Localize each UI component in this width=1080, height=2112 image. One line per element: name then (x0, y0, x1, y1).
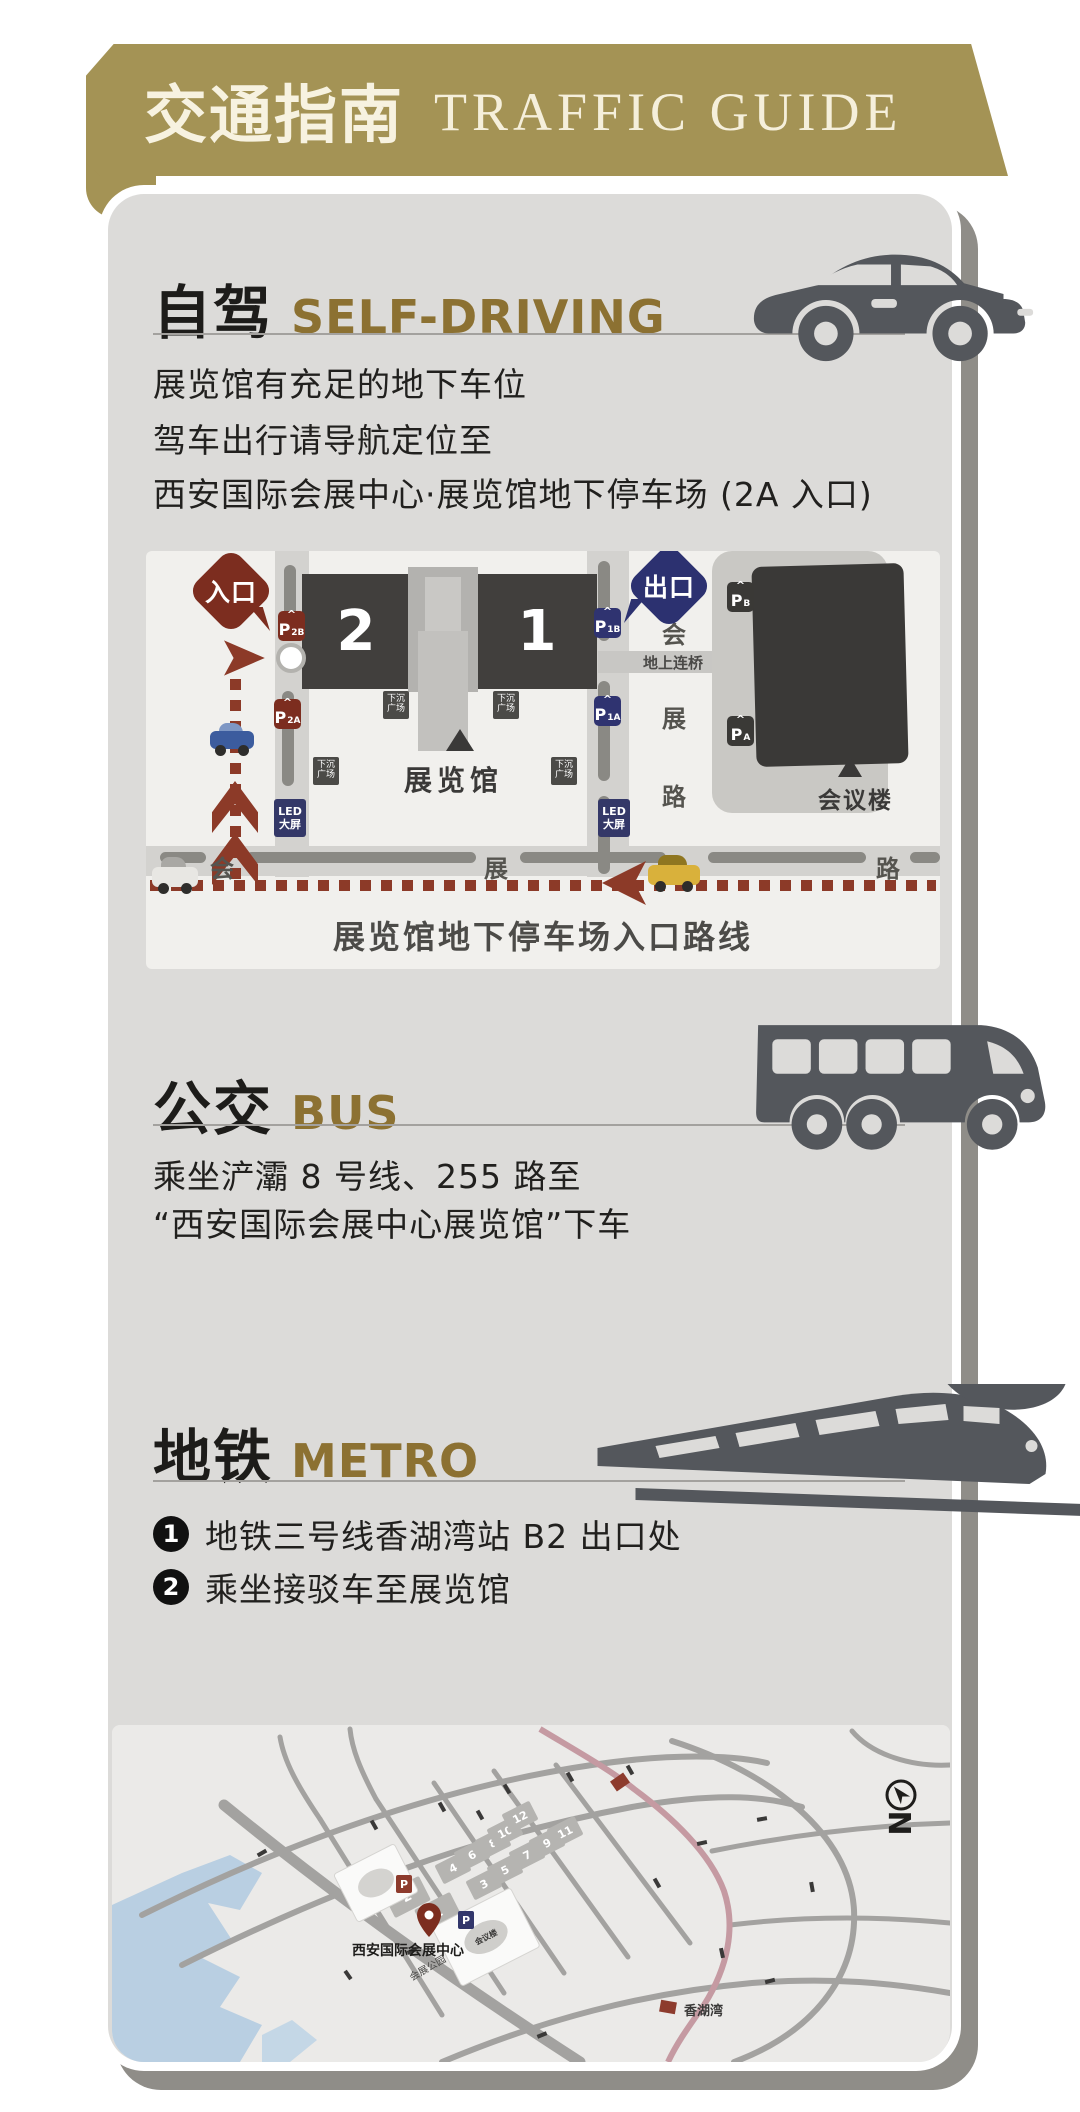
badge-letter: P (731, 593, 743, 609)
led-screen-badge: LED 大屏 (598, 799, 630, 837)
road-name-char: 会 (210, 849, 234, 884)
hall-1-block: 1 (477, 574, 597, 689)
route-arrow-right-icon (224, 637, 272, 679)
conference-triangle-icon (838, 757, 862, 777)
step-number-badge: 1 (153, 1516, 189, 1552)
car-icon (743, 224, 1043, 372)
road-median (520, 852, 666, 863)
taxi-icon (648, 855, 700, 889)
venue-pin-label: 西安国际会展中心 (352, 1942, 464, 1959)
banner-title-zh: 交通指南 (144, 65, 404, 156)
parking-badge-p2a: P2A (274, 699, 301, 729)
self-driving-line: 西安国际会展中心·展览馆地下停车场 (2A 入口) (153, 468, 873, 516)
bus-icon (748, 1002, 1052, 1188)
parking-badge-p2b: P2B (278, 611, 305, 641)
bus-title-zh: 公交 (153, 1062, 273, 1146)
badge-letter: P (400, 1878, 408, 1891)
blue-car-icon (210, 723, 254, 753)
badge-sub: 2A (287, 717, 300, 726)
white-car-icon (152, 857, 198, 891)
station-label: 香湖湾 (683, 2003, 723, 2019)
road-median (246, 852, 476, 863)
city-map-svg: 香湖湾 123456789101112 会议楼 P (112, 1725, 950, 2062)
entrance-bubble: 入口 (187, 551, 275, 635)
parking-badge-p1b: P1B (594, 608, 621, 638)
metro-step-2: 2 乘坐接驳车至展览馆 (153, 1563, 511, 1611)
led-screen-badge: LED 大屏 (274, 799, 306, 837)
city-map: 香湖湾 123456789101112 会议楼 P (112, 1725, 950, 2062)
road-median (708, 852, 866, 863)
entrance-point-marker (276, 643, 306, 673)
parking-badge-blue: P (458, 1911, 474, 1929)
conference-hall-label: 会议楼 (818, 781, 893, 815)
parking-route-diagram: 2 1 下沉 广场 下沉 广场 下沉 广场 下沉 广场 展览馆 LED 大屏 L… (146, 551, 940, 969)
self-driving-line: 驾车出行请导航定位至 (153, 414, 493, 462)
parking-badge-red: P (396, 1875, 412, 1893)
content-card: 自驾 SELF-DRIVING 展览馆有充足的地下车位 驾车出行请导航定位至 西… (108, 194, 952, 2062)
road-name-char: 路 (876, 849, 900, 884)
bus-line: 乘坐浐灞 8 号线、255 路至 (153, 1150, 581, 1198)
route-dashed-horizontal (150, 880, 936, 891)
badge-sub: 1B (607, 626, 620, 635)
section-title-bus: 公交 BUS (153, 1062, 400, 1146)
badge-letter: P (595, 619, 607, 635)
sunken-plaza-badge: 下沉 广场 (313, 757, 339, 785)
traffic-guide-poster: 交通指南 TRAFFIC GUIDE 自驾 SELF-DRIVING 展览馆有充… (0, 0, 1080, 2112)
badge-sub: 2B (291, 629, 304, 638)
banner-title-en: TRAFFIC GUIDE (434, 81, 903, 143)
badge-letter: P (275, 710, 287, 726)
parking-badge-pa: PA (727, 716, 754, 746)
badge-sub: B (743, 600, 750, 609)
bridge-label: 地上连桥 (643, 652, 703, 673)
conference-building (751, 563, 908, 767)
self-driving-title-zh: 自驾 (153, 266, 273, 350)
exhibition-hall-label: 展览馆 (404, 759, 503, 799)
sunken-plaza-badge: 下沉 广场 (493, 691, 519, 719)
hall-1-number: 1 (518, 599, 557, 664)
badge-sub: 1A (607, 714, 620, 723)
badge-letter: P (279, 622, 291, 638)
road-name-char: 展 (662, 699, 686, 734)
train-icon (588, 1384, 1080, 1534)
self-driving-line: 展览馆有充足的地下车位 (153, 358, 527, 406)
badge-letter: P (462, 1914, 470, 1927)
badge-letter: P (731, 727, 743, 743)
step-number-badge: 2 (153, 1569, 189, 1605)
road-name-char: 展 (484, 849, 508, 884)
bus-line: “西安国际会展中心展览馆”下车 (153, 1198, 631, 1246)
parking-badge-p1a: P1A (594, 696, 621, 726)
badge-letter: P (595, 707, 607, 723)
section-title-self-driving: 自驾 SELF-DRIVING (153, 266, 666, 350)
self-driving-title-en: SELF-DRIVING (291, 290, 666, 344)
badge-sub: A (743, 734, 750, 743)
exit-label: 出口 (643, 568, 695, 604)
parking-badge-pb: PB (727, 582, 754, 612)
compass-n-label: N (884, 1810, 919, 1835)
entrance-label: 入口 (205, 573, 257, 609)
parking-route-caption: 展览馆地下停车场入口路线 (146, 912, 940, 958)
bus-title-en: BUS (291, 1086, 400, 1140)
exit-bubble: 出口 (625, 551, 713, 630)
sunken-plaza-badge: 下沉 广场 (551, 757, 577, 785)
road-median (910, 852, 940, 863)
road-name-char: 路 (662, 777, 686, 812)
exhibition-hall-triangle-icon (446, 729, 474, 751)
hall-2-block: 2 (302, 574, 410, 689)
banner: 交通指南 TRAFFIC GUIDE (86, 44, 1008, 176)
hall-2-number: 2 (337, 599, 376, 664)
sunken-plaza-badge: 下沉 广场 (383, 691, 409, 719)
step-text: 乘坐接驳车至展览馆 (205, 1563, 511, 1611)
